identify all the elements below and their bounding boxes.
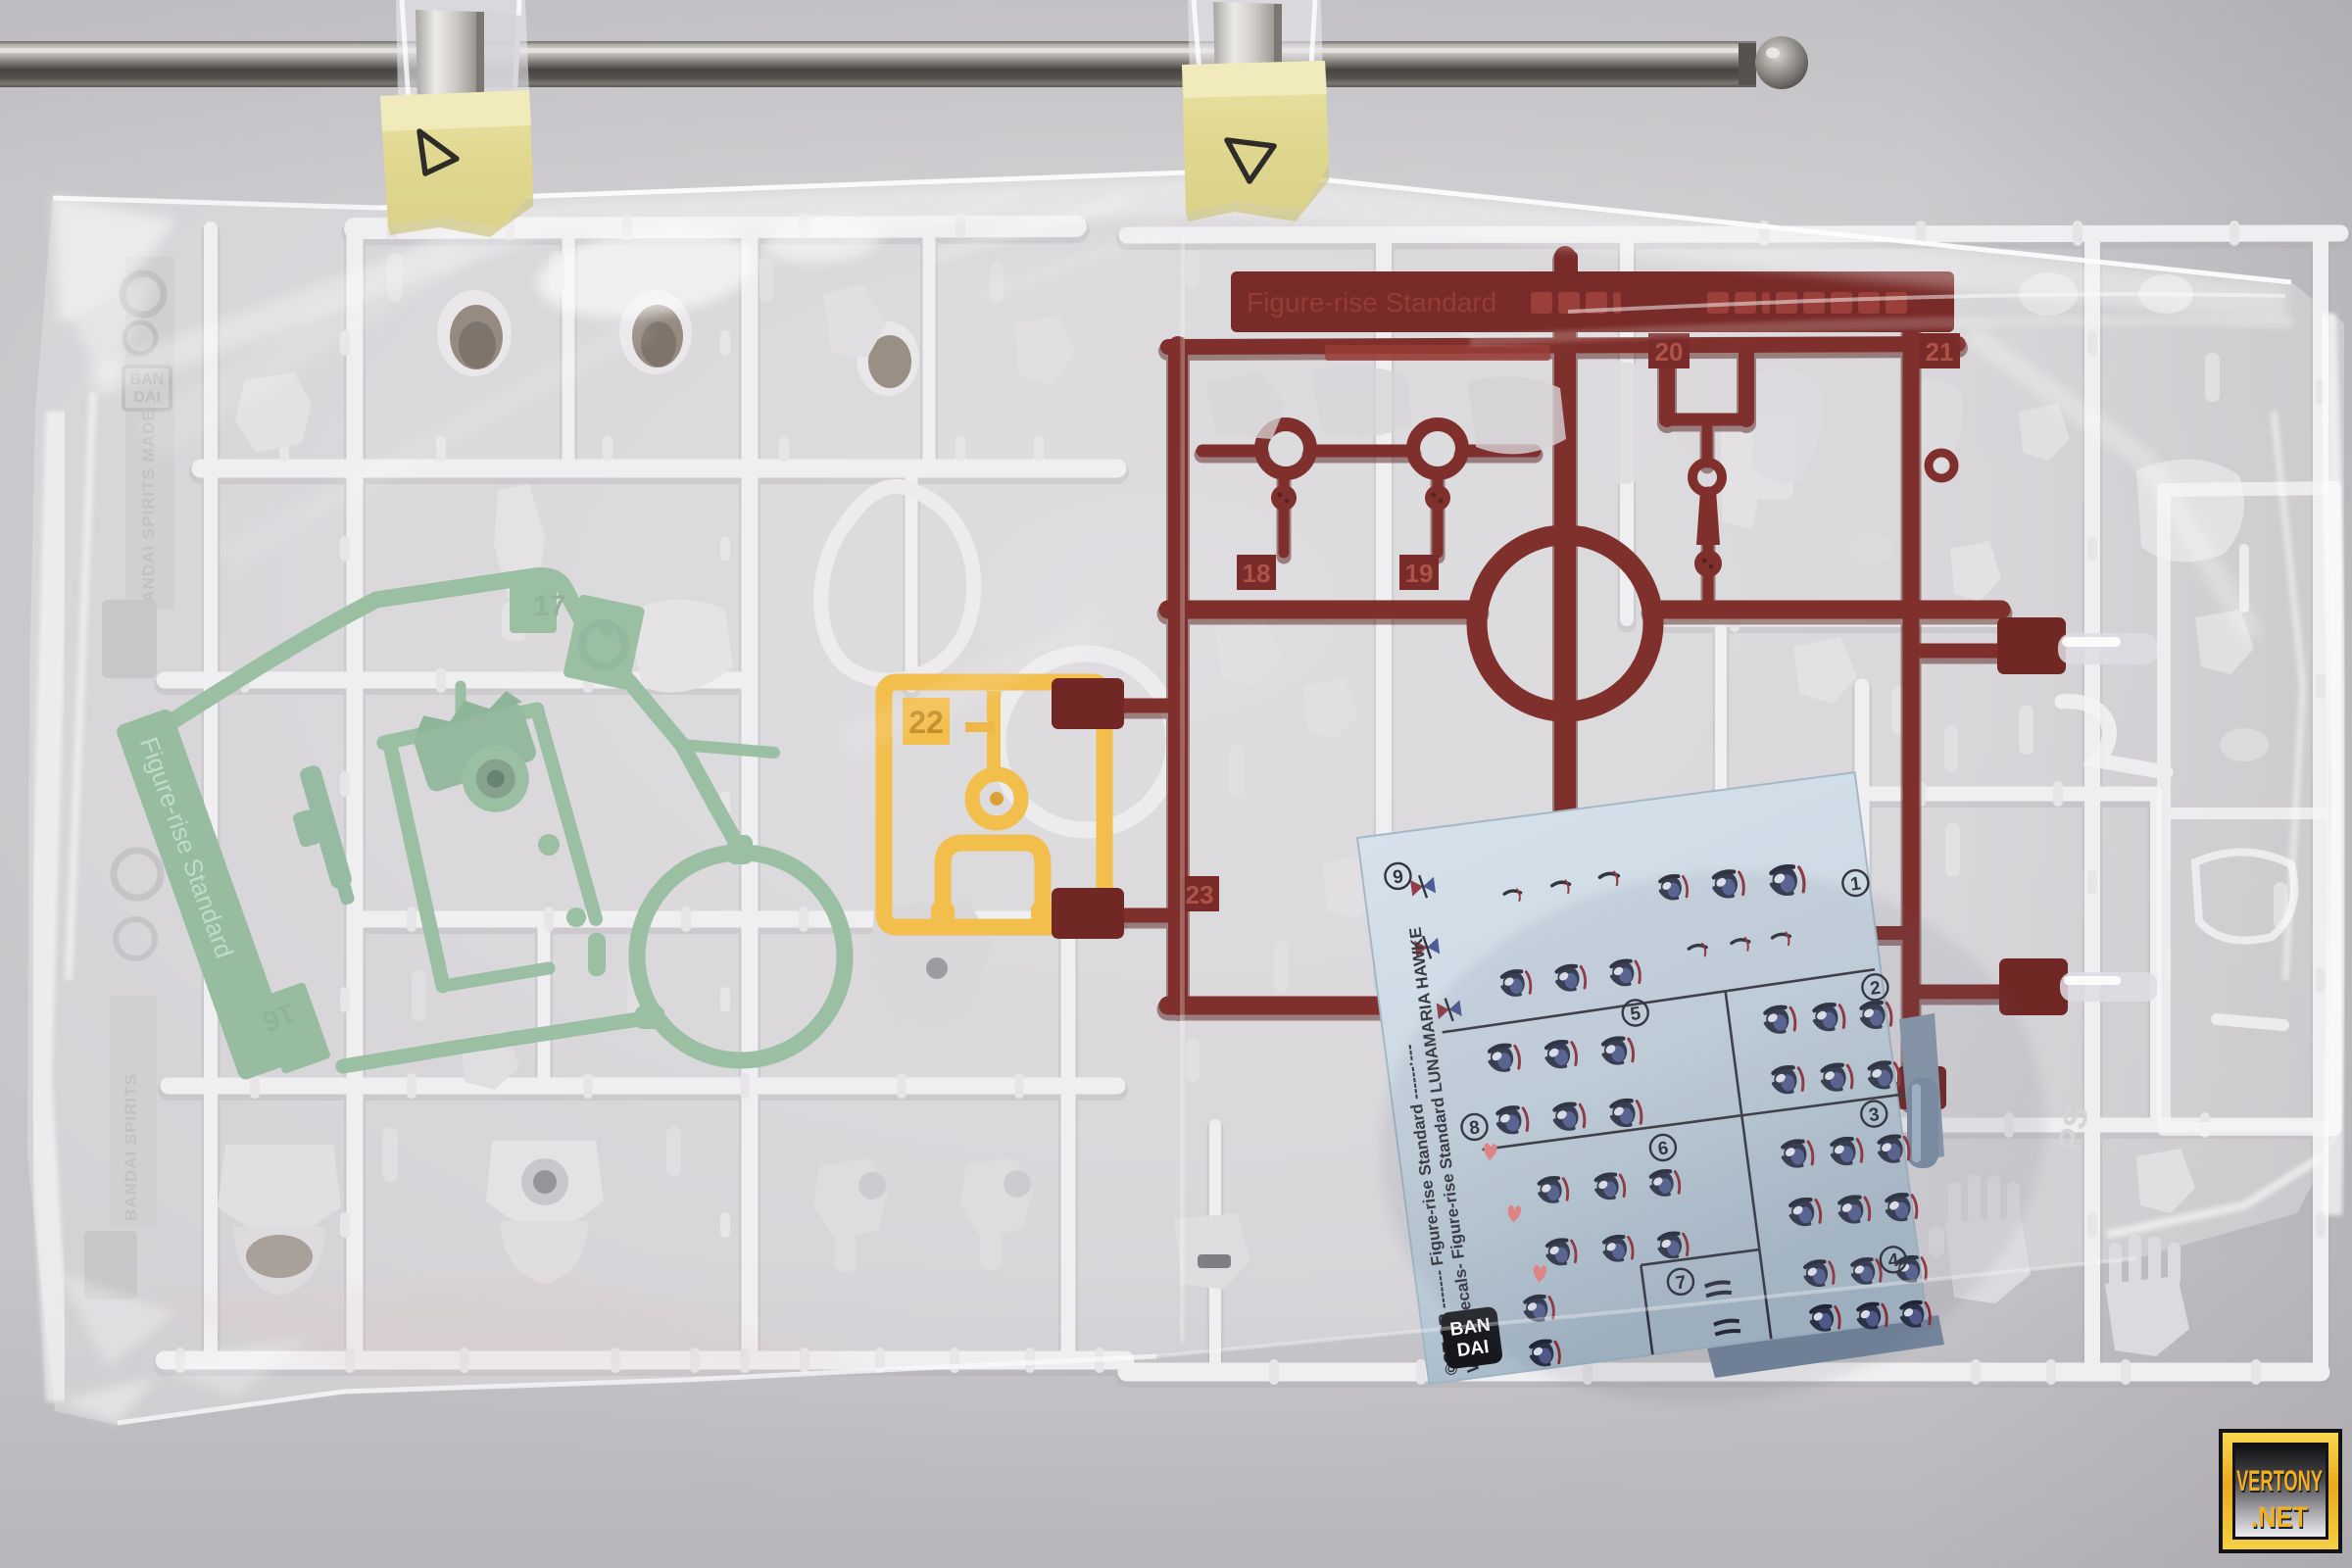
svg-text:.NET: .NET [2251, 1501, 2308, 1534]
svg-text:VERTONY: VERTONY [2236, 1465, 2323, 1497]
